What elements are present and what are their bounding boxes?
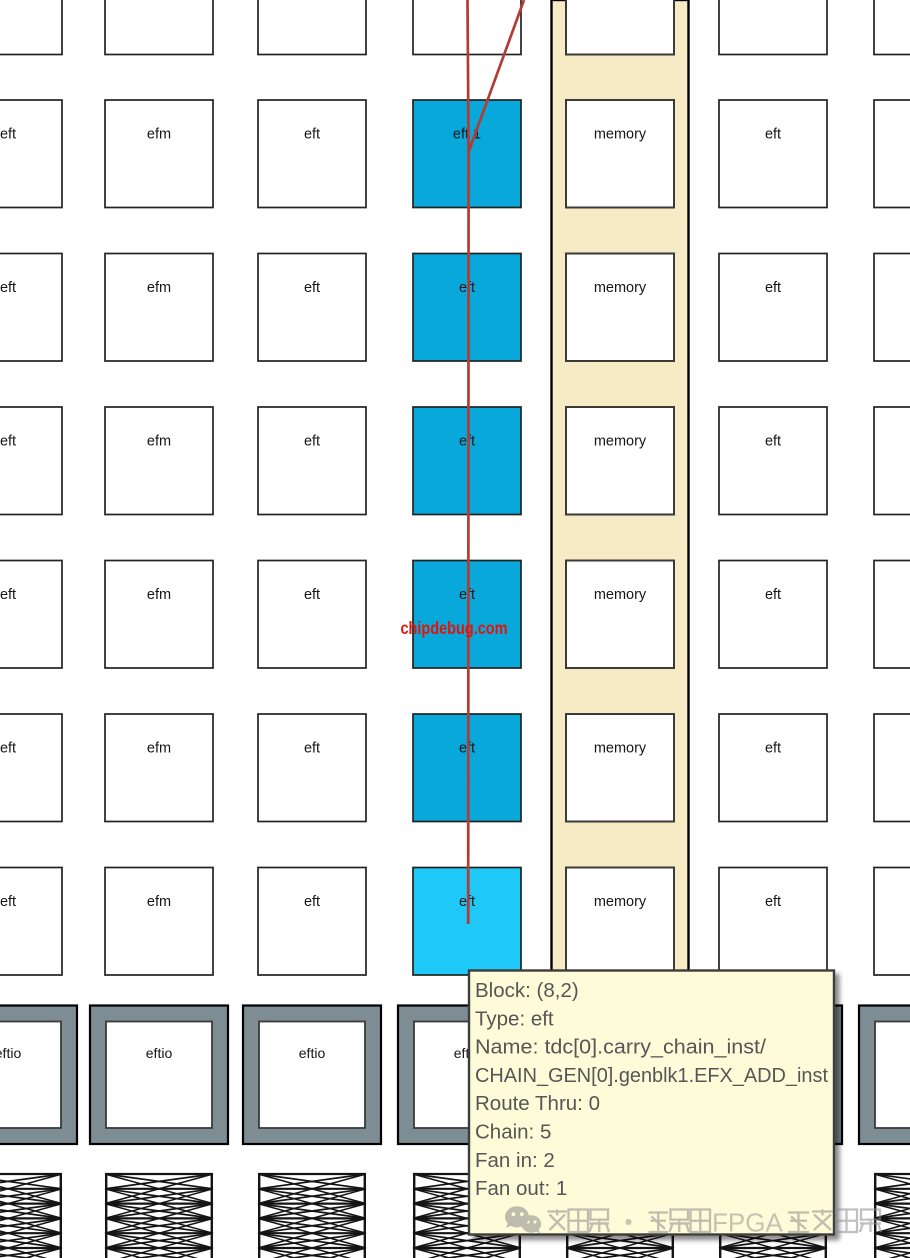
svg-text:eft: eft [765,127,781,143]
svg-text:eft: eft [459,280,475,296]
svg-text:Block: (8,2): Block: (8,2) [475,979,579,1002]
svg-text:Name: tdc[0].carry_chain_inst/: Name: tdc[0].carry_chain_inst/ [475,1036,766,1059]
svg-text:eftio: eftio [299,1045,326,1061]
svg-text:Type: eft: Type: eft [475,1007,554,1030]
svg-text:memory: memory [594,587,647,603]
svg-text:eft: eft [765,741,781,757]
svg-text:eft: eft [304,280,320,296]
svg-text:Fan in: 2: Fan in: 2 [475,1149,555,1172]
svg-text:eft: eft [765,280,781,296]
svg-text:Fan out: 1: Fan out: 1 [475,1177,567,1200]
svg-text:efm: efm [147,587,171,603]
svg-text:eft: eft [459,434,475,450]
svg-text:eft: eft [0,894,16,910]
svg-text:memory: memory [594,127,647,143]
svg-text:eft: eft [459,587,475,603]
svg-text:eft: eft [765,434,781,450]
svg-text:efm: efm [147,434,171,450]
svg-text:eft: eft [0,127,16,143]
svg-text:efm: efm [147,894,171,910]
svg-text:chipdebug.com: chipdebug.com [401,618,508,638]
svg-text:eft: eft [0,280,16,296]
svg-text:eft: eft [0,587,16,603]
svg-text:eft: eft [304,894,320,910]
svg-text:eftio: eftio [0,1045,21,1061]
svg-text:eft: eft [304,127,320,143]
svg-text:memory: memory [594,741,647,757]
svg-text:memory: memory [594,434,647,450]
svg-text:eft: eft [765,587,781,603]
svg-text:eft: eft [0,741,16,757]
svg-text:efm: efm [147,127,171,143]
svg-text:Chain: 5: Chain: 5 [475,1121,551,1144]
svg-text:eft: eft [304,587,320,603]
svg-text:efm: efm [147,741,171,757]
svg-text:memory: memory [594,280,647,296]
svg-text:eft: eft [0,434,16,450]
svg-text:eft: eft [765,894,781,910]
svg-text:eftio: eftio [146,1045,173,1061]
svg-text:eft: eft [304,741,320,757]
svg-text:memory: memory [594,894,647,910]
svg-text:CHAIN_GEN[0].genblk1.EFX_ADD_i: CHAIN_GEN[0].genblk1.EFX_ADD_inst [475,1064,828,1087]
svg-text:eft: eft [304,434,320,450]
svg-text:FPGA: FPGA [712,1208,783,1238]
svg-text:efm: efm [147,280,171,296]
svg-text:Route Thru: 0: Route Thru: 0 [475,1092,600,1115]
